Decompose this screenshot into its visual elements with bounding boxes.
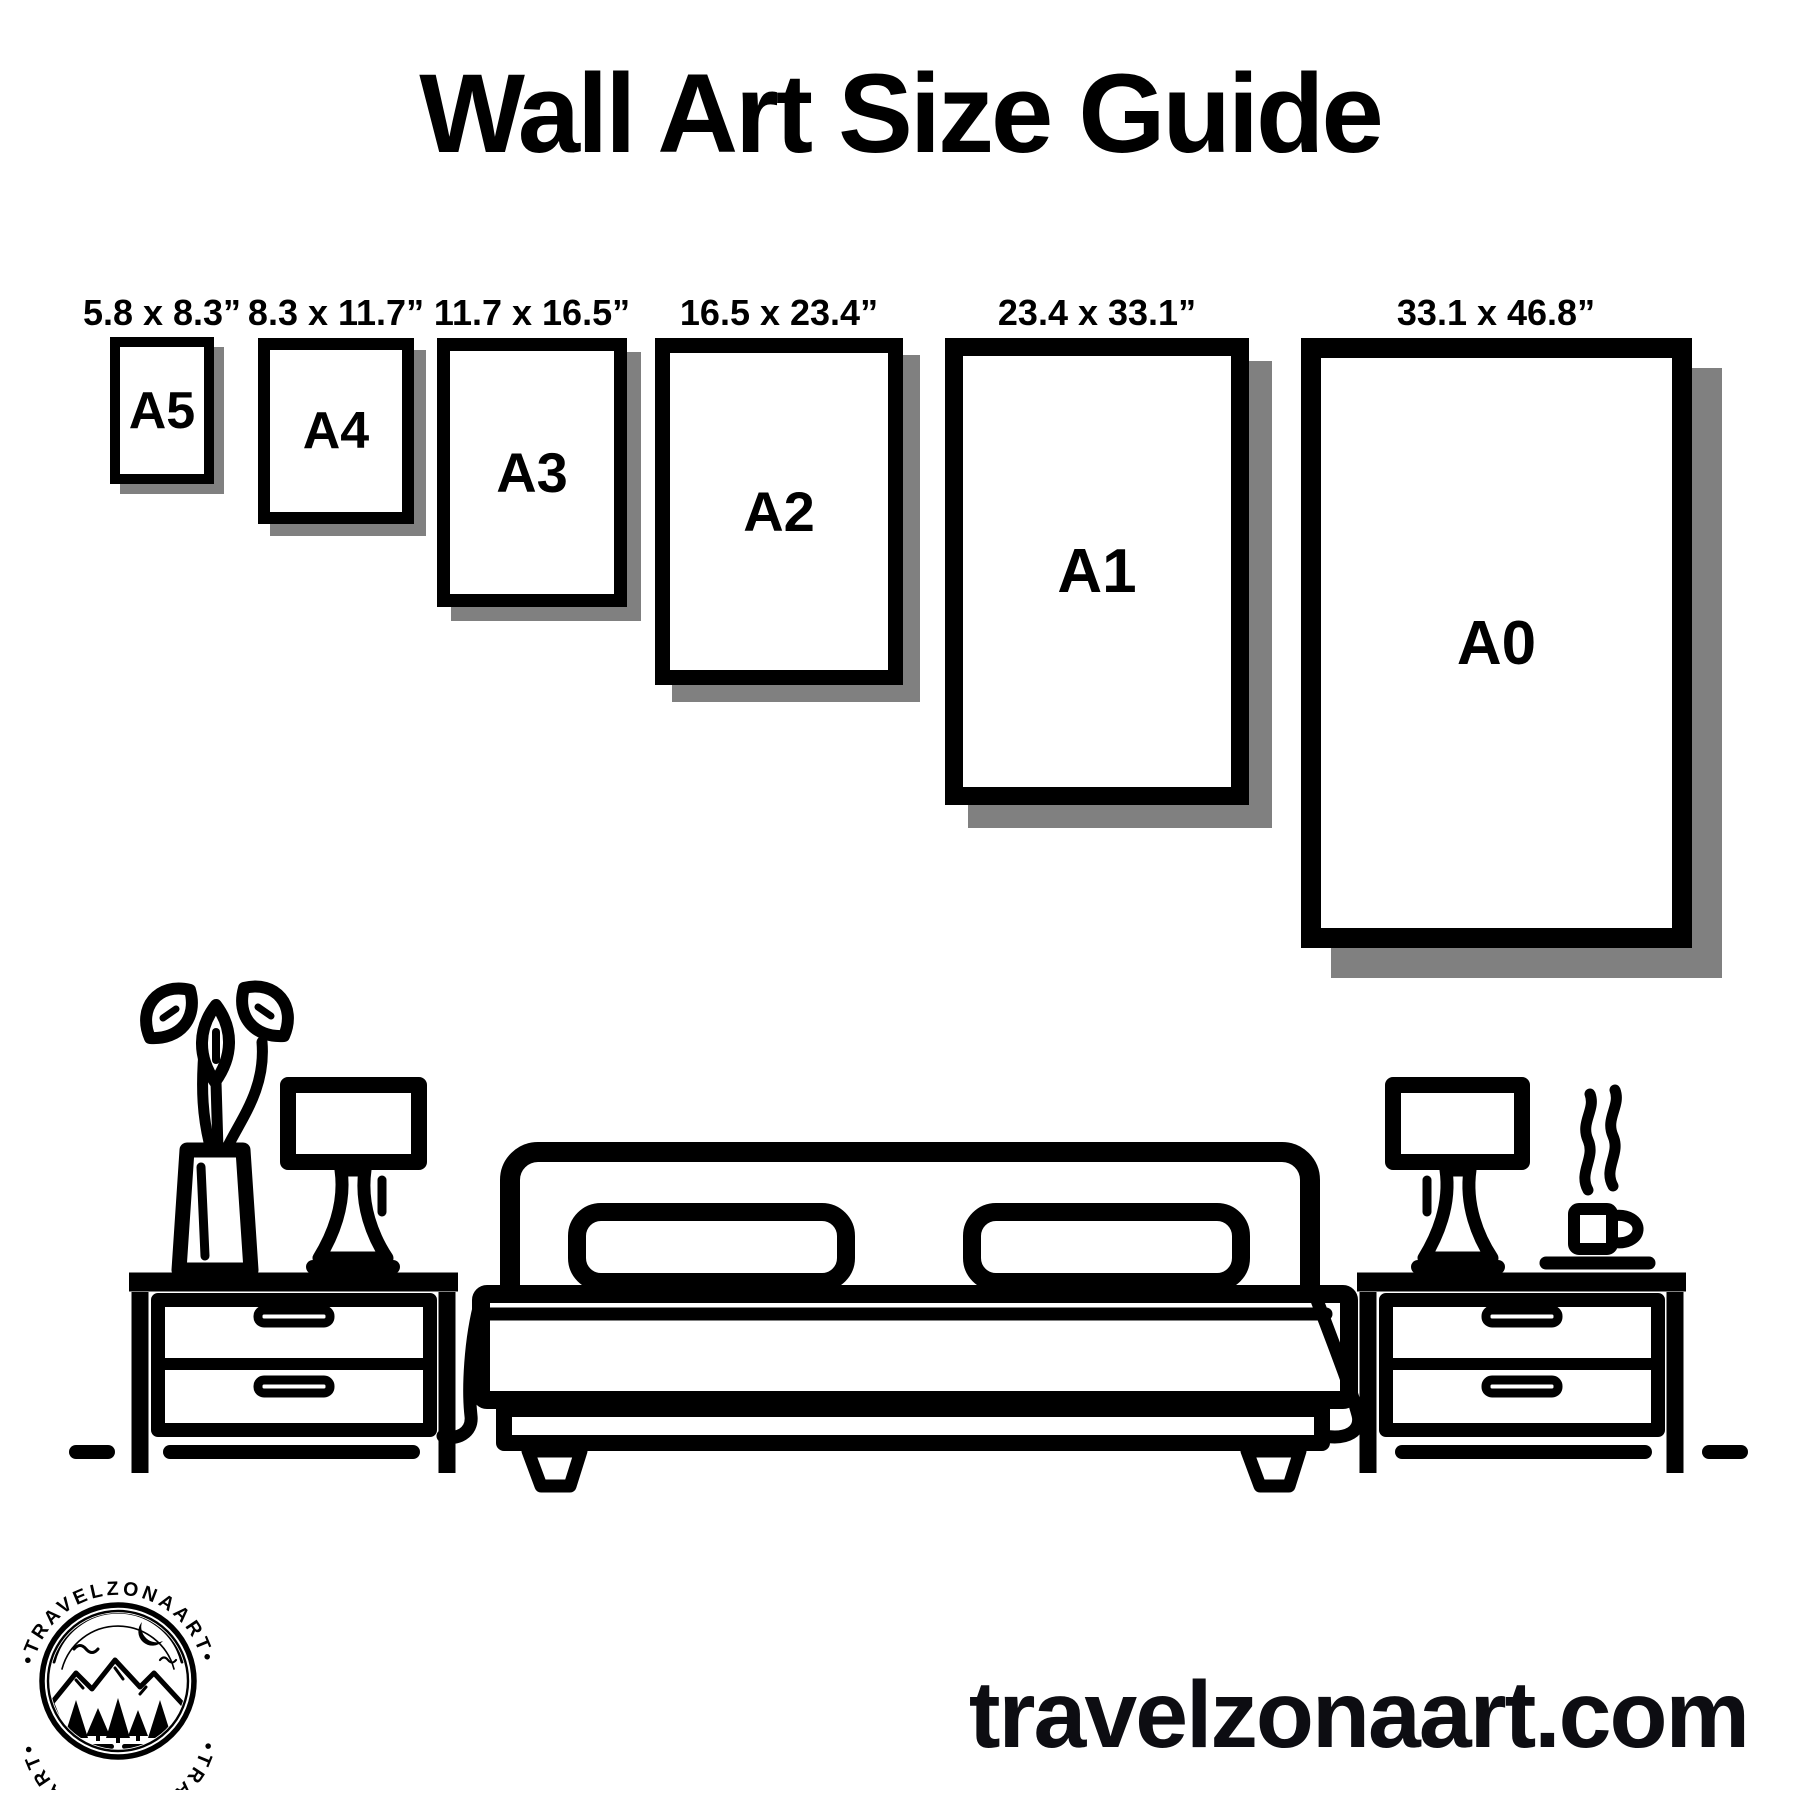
brand-logo: •TRAVELZONAART• •TRAVELZONAART• xyxy=(18,1570,228,1790)
bird-icon xyxy=(160,1658,176,1663)
plant-icon xyxy=(146,987,288,1270)
bird-icon xyxy=(74,1646,98,1653)
website-url: travelzonaart.com xyxy=(969,1668,1748,1763)
nightstand-right-icon xyxy=(1357,1282,1686,1473)
bed-icon xyxy=(443,1152,1359,1486)
logo-arc-text-bottom: •TRAVELZONAART• xyxy=(18,1740,219,1790)
nightstand-left-icon xyxy=(129,1282,458,1473)
lamp-right-icon xyxy=(1393,1085,1522,1267)
coffee-cup-icon xyxy=(1546,1090,1649,1263)
wall-art-size-guide: Wall Art Size Guide 5.8 x 8.3” 8.3 x 11.… xyxy=(0,0,1800,1800)
bedroom-illustration xyxy=(0,0,1800,1800)
lamp-left-icon xyxy=(288,1085,419,1267)
